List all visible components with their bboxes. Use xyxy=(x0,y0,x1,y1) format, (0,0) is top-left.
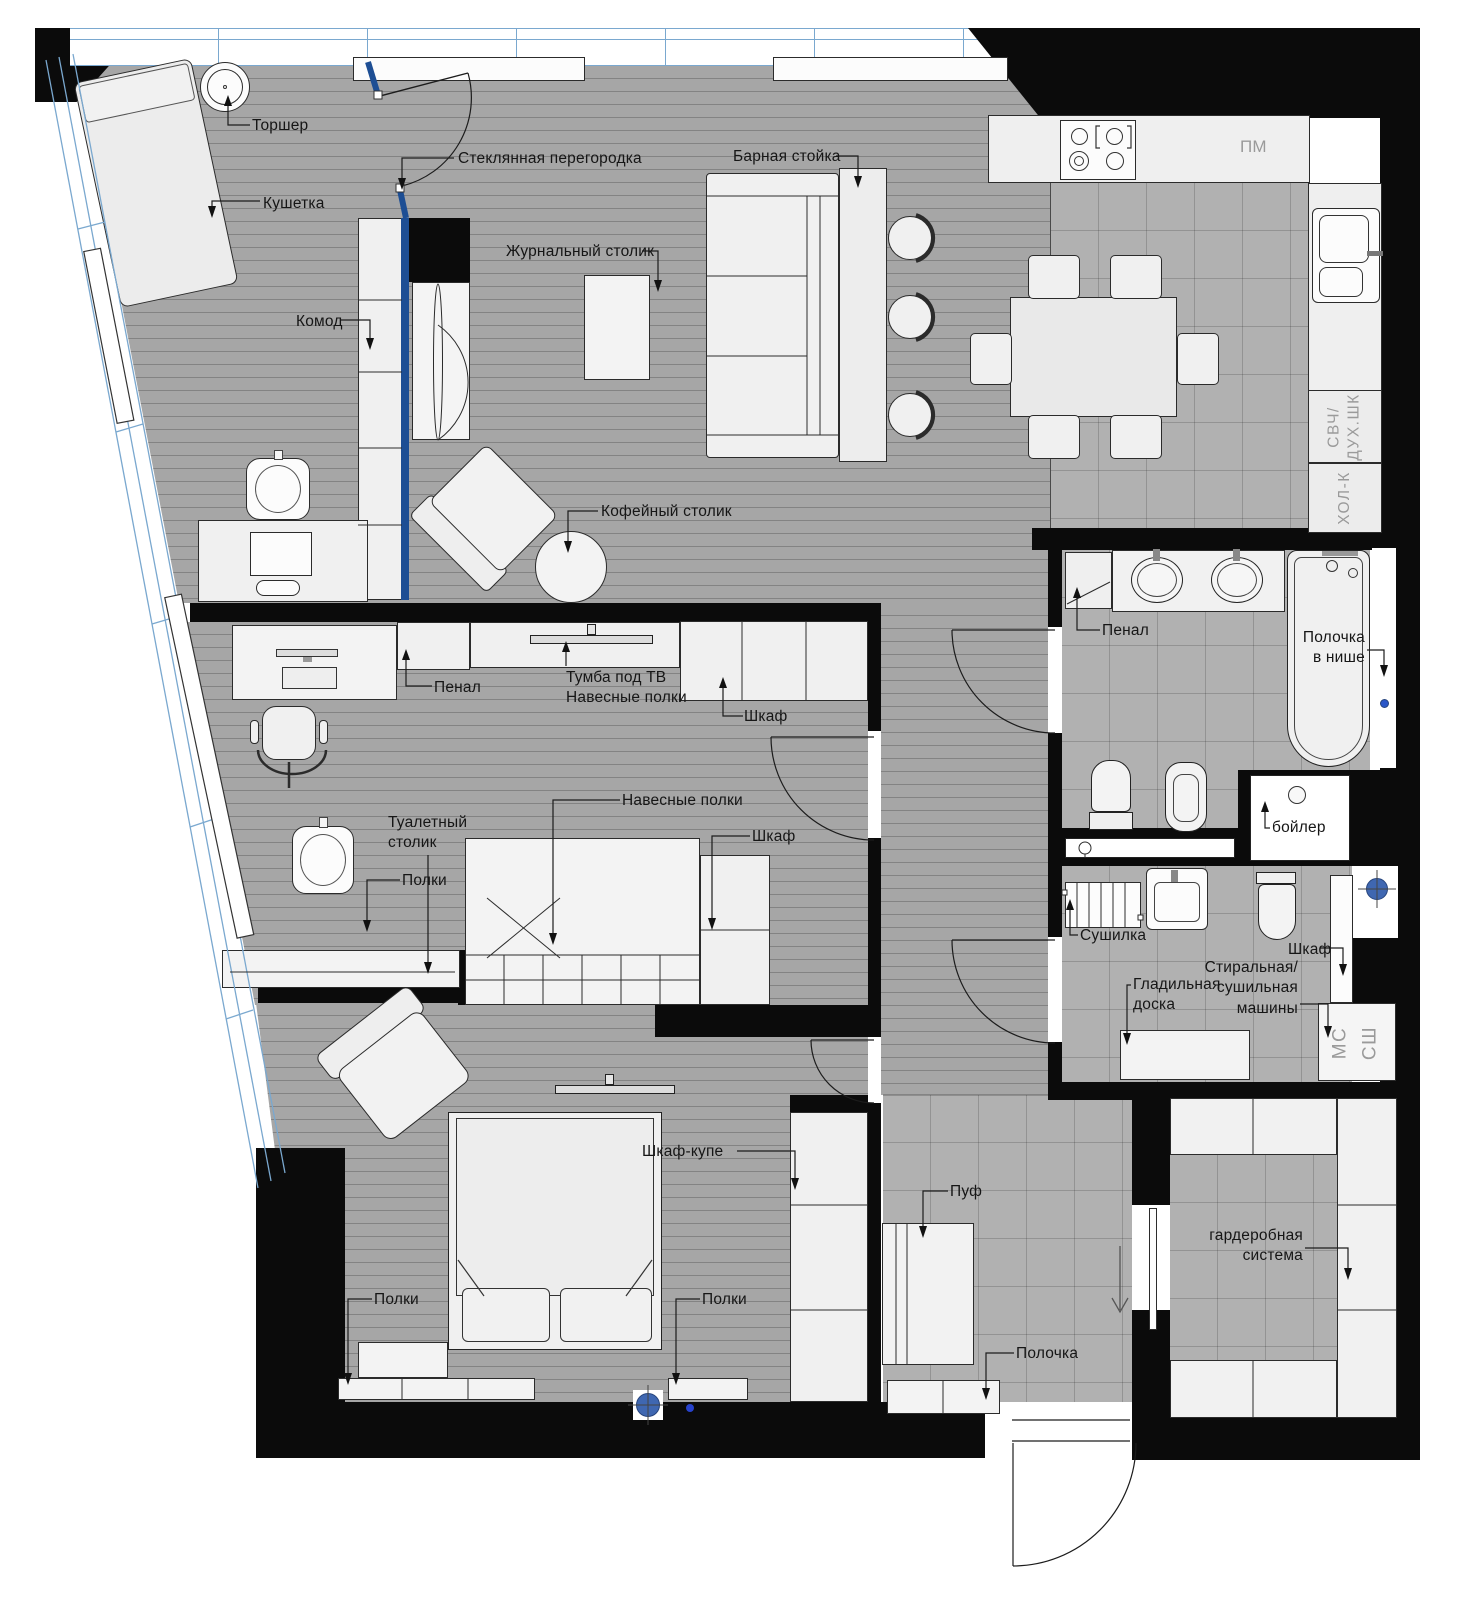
label-garderob: гардеробная система xyxy=(1209,1226,1303,1267)
label-journal-table: Журнальный столик xyxy=(506,242,654,262)
label-polochka-v-nishe: Полочка в нише xyxy=(1303,628,1365,669)
label-penal-bath: Пенал xyxy=(1102,621,1149,641)
label-polki-office: Полки xyxy=(402,871,447,891)
label-shkaf-office-2: Шкаф xyxy=(752,827,796,847)
label-kushetka: Кушетка xyxy=(263,194,325,214)
label-washer-dryer: Стиральная/ сушильная машины xyxy=(1205,958,1298,1019)
label-bar-counter: Барная стойка xyxy=(733,147,841,167)
label-coffee-table: Кофейный столик xyxy=(601,502,732,522)
label-svch-duh: СВЧ/ ДУХ.ШК xyxy=(1325,393,1366,460)
label-shkaf-kupe: Шкаф-купе xyxy=(642,1142,723,1162)
label-polki-bed-left: Полки xyxy=(374,1290,419,1310)
label-navesnye-polki: Навесные полки xyxy=(622,791,743,811)
label-sushilka: Сушилка xyxy=(1080,926,1146,946)
label-torsher: Торшер xyxy=(252,116,308,136)
annotation-labels: ТоршерКушеткаСтеклянная перегородкаЖурна… xyxy=(0,0,1470,1600)
label-tualetny-stolik: Туалетный столик xyxy=(388,813,467,854)
label-ssh: СШ xyxy=(1357,1026,1382,1060)
label-hol-k: ХОЛ-К xyxy=(1335,471,1355,525)
label-polki-bed-right: Полки xyxy=(702,1290,747,1310)
label-penal-office: Пенал xyxy=(434,678,481,698)
label-tv-stand: Тумба под ТВ Навесные полки xyxy=(566,668,687,709)
label-ms: МС xyxy=(1327,1027,1352,1060)
label-polochka-hall: Полочка xyxy=(1016,1344,1078,1364)
label-komod: Комод xyxy=(296,312,343,332)
floor-plan: ТоршерКушеткаСтеклянная перегородкаЖурна… xyxy=(0,0,1470,1600)
label-puf: Пуф xyxy=(950,1182,982,1202)
label-shkaf-office: Шкаф xyxy=(744,707,788,727)
label-pm: ПМ xyxy=(1240,136,1267,158)
label-boiler: бойлер xyxy=(1272,818,1326,838)
label-glass-partition: Стеклянная перегородка xyxy=(458,149,642,169)
